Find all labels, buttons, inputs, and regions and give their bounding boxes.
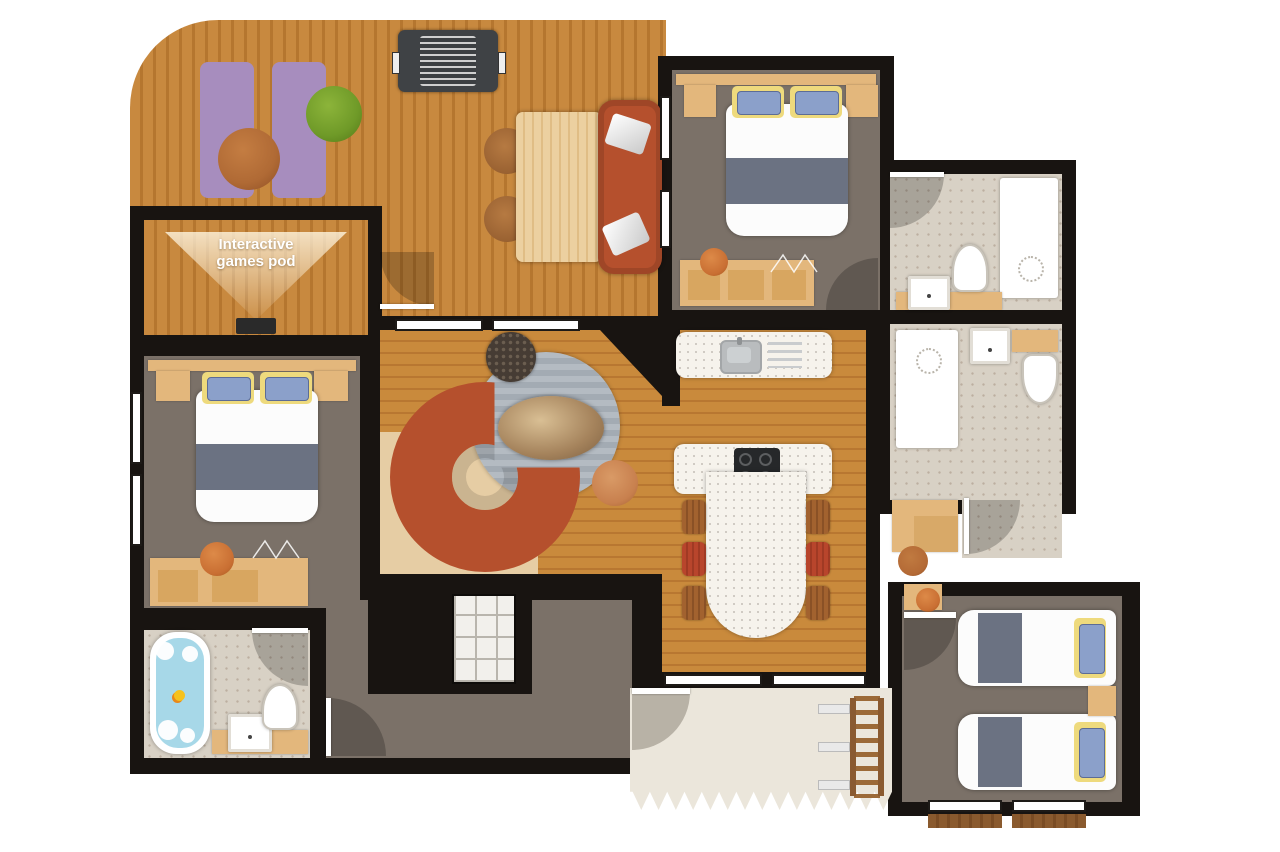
deck-sofa bbox=[598, 100, 662, 274]
bbq-grill bbox=[398, 30, 498, 92]
entrance-mat bbox=[452, 594, 516, 684]
pouf-dark bbox=[486, 332, 536, 382]
window bbox=[131, 474, 142, 546]
steps-ladder bbox=[850, 696, 884, 798]
games-pod-label-line2: games pod bbox=[150, 253, 362, 270]
bench-seat bbox=[728, 270, 764, 300]
step bbox=[818, 704, 850, 714]
door-leaf bbox=[326, 698, 331, 756]
step bbox=[818, 742, 850, 752]
window bbox=[1012, 800, 1086, 812]
cushion-orange bbox=[700, 248, 728, 276]
deck-table bbox=[516, 112, 602, 262]
step bbox=[818, 780, 850, 790]
nightstand bbox=[314, 371, 348, 401]
hob-ring bbox=[739, 453, 752, 466]
window bbox=[660, 96, 671, 160]
bathroom-sink bbox=[908, 276, 950, 310]
coffee-table-stone bbox=[498, 396, 604, 460]
floor-plan: Interactive games pod bbox=[0, 0, 1280, 852]
sofa-cushion bbox=[604, 113, 652, 156]
nightstand bbox=[684, 85, 716, 117]
sliding-door bbox=[772, 674, 866, 686]
window bbox=[928, 800, 1002, 812]
beanbag-green bbox=[306, 86, 362, 142]
hanging-rail bbox=[250, 538, 302, 560]
games-pod-label: Interactive games pod bbox=[150, 236, 362, 270]
door-leaf bbox=[380, 304, 434, 309]
toilet bbox=[952, 244, 988, 292]
dining-chair bbox=[806, 542, 830, 576]
nightstand bbox=[156, 371, 190, 401]
desk bbox=[892, 500, 958, 552]
tap-icon bbox=[737, 337, 742, 345]
projector bbox=[236, 318, 276, 334]
bbq-handle bbox=[392, 52, 400, 74]
games-pod-label-line1: Interactive bbox=[150, 236, 362, 253]
beanbag-brown bbox=[218, 128, 280, 190]
door-leaf bbox=[890, 172, 944, 177]
desk-chair bbox=[898, 546, 928, 576]
drainer bbox=[768, 342, 802, 368]
sliding-door bbox=[492, 319, 580, 331]
rubber-duck bbox=[174, 690, 185, 701]
sliding-door bbox=[664, 674, 762, 686]
door-leaf bbox=[964, 498, 969, 554]
bbq-handle bbox=[498, 52, 506, 74]
cushion-orange bbox=[200, 542, 234, 576]
sliding-door bbox=[395, 319, 483, 331]
bathroom-sink bbox=[970, 328, 1010, 364]
dining-chair bbox=[682, 586, 706, 620]
dining-chair bbox=[682, 542, 706, 576]
pouf-orange bbox=[592, 460, 638, 506]
toilet bbox=[262, 684, 298, 730]
double-bed bbox=[726, 78, 848, 236]
hanging-rail bbox=[768, 252, 820, 274]
window bbox=[660, 190, 671, 248]
twin-bed bbox=[958, 714, 1116, 790]
shower bbox=[1000, 178, 1058, 298]
bath-foam bbox=[156, 642, 174, 660]
kitchen-sink bbox=[720, 340, 762, 374]
twin-bed bbox=[958, 610, 1116, 686]
bathtub bbox=[150, 632, 210, 754]
shower bbox=[896, 330, 958, 448]
desk-top bbox=[914, 516, 958, 552]
cushion-orange bbox=[916, 588, 940, 612]
dining-table bbox=[706, 472, 806, 638]
door-leaf bbox=[632, 688, 690, 694]
bench-seat bbox=[158, 570, 198, 602]
hall-floor bbox=[532, 600, 632, 696]
nightstand bbox=[846, 85, 878, 117]
bath-foam bbox=[158, 720, 178, 740]
double-bed bbox=[196, 364, 318, 522]
sofa-cushion bbox=[601, 211, 651, 257]
door-leaf bbox=[252, 628, 308, 633]
hob-ring bbox=[759, 453, 772, 466]
dining-chair bbox=[806, 500, 830, 534]
window-box bbox=[928, 814, 1002, 828]
dining-chair bbox=[682, 500, 706, 534]
dining-chair bbox=[806, 586, 830, 620]
bbq-grate bbox=[420, 36, 476, 86]
nightstand bbox=[1088, 686, 1116, 716]
window-box bbox=[1012, 814, 1086, 828]
bench-seat bbox=[772, 270, 806, 300]
bath-foam bbox=[182, 646, 198, 662]
bath-foam bbox=[180, 728, 195, 743]
kitchen-counter bbox=[676, 332, 832, 378]
vanity-counter bbox=[1012, 330, 1058, 352]
window bbox=[131, 392, 142, 464]
